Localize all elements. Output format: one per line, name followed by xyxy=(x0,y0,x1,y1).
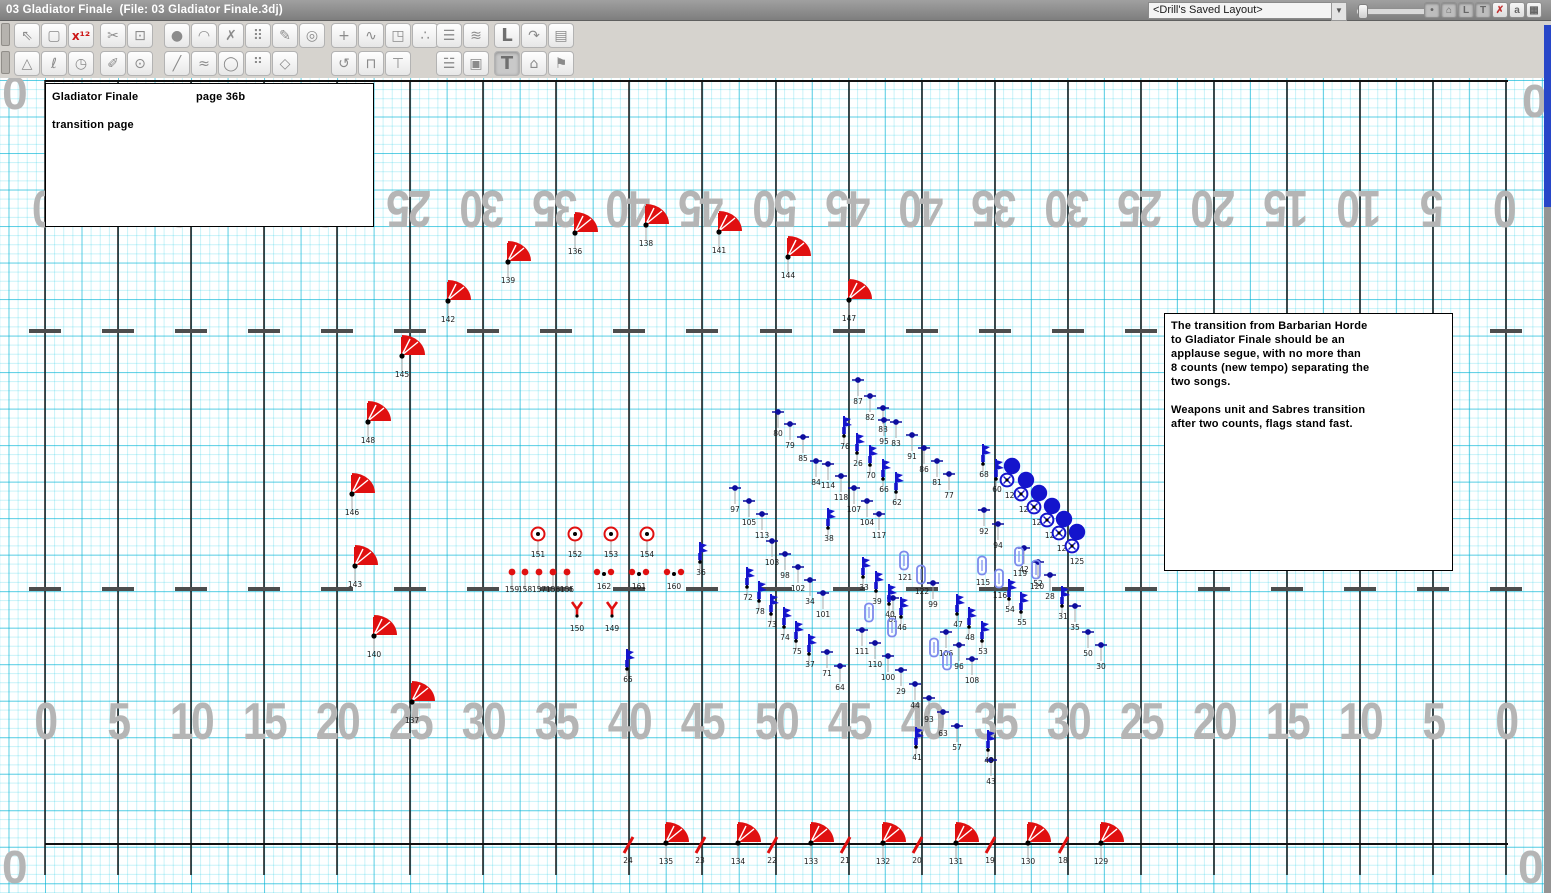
yard-number-top: 35 xyxy=(973,182,1016,234)
flag-performer-label: 144 xyxy=(768,272,808,280)
hash-mark xyxy=(1052,329,1084,333)
text-tool-button[interactable]: T xyxy=(494,51,520,76)
yard-number-top: 15 xyxy=(1266,182,1309,234)
weapon-figure-performer-label: 53 xyxy=(963,648,1003,656)
y-pole-performer[interactable] xyxy=(604,601,620,624)
flag-performer-label: 139 xyxy=(488,277,528,285)
ripple-tool-button[interactable]: ≋ xyxy=(463,23,489,48)
hash-mark xyxy=(833,329,865,333)
yard-number-bottom: 20 xyxy=(316,696,359,748)
slash-performer-label: 21 xyxy=(825,857,865,865)
flag-performer-label: 141 xyxy=(699,247,739,255)
dot-tool-button[interactable]: ● xyxy=(164,23,190,48)
toolbar-group: △ℓ◷ xyxy=(14,51,95,76)
zoom-slider-thumb[interactable] xyxy=(1358,4,1368,19)
back-sideline xyxy=(45,80,1508,82)
dot-performer[interactable] xyxy=(507,568,517,599)
hash-mark xyxy=(1125,329,1157,333)
arc-tool-button[interactable]: ◠ xyxy=(191,23,217,48)
slash-performer-label: 19 xyxy=(970,857,1010,865)
yard-number-bottom: 40 xyxy=(608,696,651,748)
path-adjust-tool-button[interactable]: ∿ xyxy=(358,23,384,48)
slash-performer-label: 20 xyxy=(897,857,937,865)
rifle-dot-performer-label: 35 xyxy=(1055,624,1095,632)
pencil-tool-button[interactable]: ✎ xyxy=(272,23,298,48)
window-title: 03 Gladiator Finale (File: 03 Gladiator … xyxy=(6,0,283,20)
hash-mark xyxy=(686,329,718,333)
yard-number-bottom: 10 xyxy=(170,696,213,748)
hash-mark xyxy=(1198,587,1230,591)
location-pin-tool-button[interactable]: ⊙ xyxy=(127,51,153,76)
hash-mark xyxy=(29,587,61,591)
tri-dot-performer-label: 160 xyxy=(654,583,694,591)
toolbar-group: ⇖▢x¹² xyxy=(14,23,95,48)
yard-number-top: 25 xyxy=(1119,182,1162,234)
hash-mark xyxy=(248,587,280,591)
home-view-button[interactable]: ⌂ xyxy=(1441,2,1457,18)
dropdown-arrow-icon[interactable]: ▼ xyxy=(1331,2,1347,21)
rifle-dot-performer-label: 94 xyxy=(978,542,1018,550)
dot-performer[interactable] xyxy=(562,568,572,599)
move-tool-button[interactable]: + xyxy=(331,23,357,48)
yard-number-bottom: 45 xyxy=(827,696,870,748)
dot-performer-label: 155 xyxy=(547,586,587,594)
dot-view-button[interactable]: • xyxy=(1424,2,1440,18)
circle-dot-performer-label: 154 xyxy=(627,551,667,559)
hash-mark xyxy=(760,329,792,333)
y-pole-performer[interactable] xyxy=(569,601,585,624)
follow-arrow-tool-button[interactable]: ↷ xyxy=(521,23,547,48)
close-button[interactable]: ✗ xyxy=(1492,2,1508,18)
toolbar-grip[interactable] xyxy=(1,51,10,74)
freeform-wave-tool-button[interactable]: ≈ xyxy=(191,51,217,76)
toolbar-group: ↺⊓⊤ xyxy=(331,51,412,76)
flag-performer-label: 130 xyxy=(1008,858,1048,866)
rifle-dot-performer-label: 30 xyxy=(1081,663,1121,671)
weapon-figure-performer-label: 38 xyxy=(809,535,849,543)
align-lines-tool-button[interactable]: ☰ xyxy=(436,23,462,48)
yard-number-bottom: 0 xyxy=(1495,696,1516,748)
rifle-dot-performer-label: 43 xyxy=(971,778,1011,786)
hash-mark xyxy=(467,329,499,333)
tri-dot-performer-label: 161 xyxy=(619,583,659,591)
pole-tool-button[interactable]: ⊤ xyxy=(385,51,411,76)
circle-dot-performer-label: 153 xyxy=(591,551,631,559)
hash-mark xyxy=(102,329,134,333)
dot-cluster-tool-button[interactable]: ⠛ xyxy=(245,51,271,76)
corner-zero-number: 0 xyxy=(1522,78,1545,124)
distribute-tool-button[interactable]: ☱ xyxy=(436,51,462,76)
circle-tool-button[interactable]: ◯ xyxy=(218,51,244,76)
hash-mark xyxy=(321,329,353,333)
lasso-tool-button[interactable]: ℓ xyxy=(41,51,67,76)
home-view-tool-button[interactable]: ⌂ xyxy=(521,51,547,76)
sabre-performer-label: 125 xyxy=(1057,558,1097,566)
flag-performer-label: 137 xyxy=(392,717,432,725)
right-scrollbar-thumb[interactable] xyxy=(1544,25,1551,207)
slash-performer-label: 23 xyxy=(680,857,720,865)
weapon-figure-performer-label: 37 xyxy=(790,661,830,669)
weapon-figure-performer-label: 49 xyxy=(969,757,1009,765)
hash-mark xyxy=(102,587,134,591)
weapon-figure-performer-label: 65 xyxy=(608,676,648,684)
note-page: page 36b xyxy=(196,91,245,103)
tri-dot-performer-label: 162 xyxy=(584,583,624,591)
yard-number-top: 30 xyxy=(1046,182,1089,234)
yard-number-bottom: 30 xyxy=(1046,696,1089,748)
toolbar-group: L↷▤ xyxy=(494,23,575,48)
yard-number-top: 5 xyxy=(1422,182,1443,234)
yard-number-bottom: 10 xyxy=(1339,696,1382,748)
toolbar-group: ●◠✗⠿✎◎ xyxy=(164,23,326,48)
yard-number-top: 20 xyxy=(1193,182,1236,234)
note-title: Gladiator Finale xyxy=(52,91,138,103)
select-tool-button[interactable]: ⇖ xyxy=(14,23,40,48)
yard-number-bottom: 0 xyxy=(34,696,55,748)
toolbar-group: T⌂⚑ xyxy=(494,51,575,76)
title-bar: 03 Gladiator Finale (File: 03 Gladiator … xyxy=(0,0,1551,21)
corner-zero-number: 0 xyxy=(2,844,26,890)
layout-selector-dropdown[interactable]: <Drill's Saved Layout> xyxy=(1148,2,1340,19)
yard-number-top: 0 xyxy=(1495,182,1516,234)
cut-tool-button[interactable]: ✂ xyxy=(100,23,126,48)
flag-performer-label: 143 xyxy=(335,581,375,589)
toolbar-group: ╱≈◯⠛◇ xyxy=(164,51,299,76)
line-tool-button[interactable]: ╱ xyxy=(164,51,190,76)
rifle-dot-performer-label: 108 xyxy=(952,677,992,685)
outline-figure-performer[interactable] xyxy=(928,637,942,666)
rifle-dot-performer-label: 117 xyxy=(859,532,899,540)
t-view-button[interactable]: T xyxy=(1475,2,1491,18)
spiral-tool-button[interactable]: ◎ xyxy=(299,23,325,48)
toolbar-group: ☰≋ xyxy=(436,23,490,48)
grid-view-button[interactable]: ▦ xyxy=(1526,2,1542,18)
toolbar-group: ☱▣ xyxy=(436,51,490,76)
yard-number-top: 40 xyxy=(900,182,943,234)
outline-figure-performer-label: 116 xyxy=(980,592,1020,600)
flag-marker-tool-button[interactable]: ⚑ xyxy=(548,51,574,76)
yard-number-bottom: 35 xyxy=(535,696,578,748)
titlebar-button-group: •⌂LT✗a▦ xyxy=(1424,2,1542,18)
marquee-select-tool-button[interactable]: ▢ xyxy=(41,23,67,48)
weapon-figure-performer-label: 36 xyxy=(681,569,721,577)
hash-mark xyxy=(1125,587,1157,591)
history-clock-tool-button[interactable]: ◷ xyxy=(68,51,94,76)
cone-tool-button[interactable]: △ xyxy=(14,51,40,76)
transition-note-box[interactable]: The transition from Barbarian Horde to G… xyxy=(1164,313,1453,571)
hash-mark xyxy=(1271,587,1303,591)
dot-performer[interactable] xyxy=(520,568,530,599)
block-grid-tool-button[interactable]: ⠿ xyxy=(245,23,271,48)
yard-number-bottom: 15 xyxy=(1266,696,1309,748)
polygon-tool-button[interactable]: ◇ xyxy=(272,51,298,76)
circle-dot-performer-label: 151 xyxy=(518,551,558,559)
yard-number-bottom: 5 xyxy=(107,696,128,748)
flag-performer-label: 147 xyxy=(829,315,869,323)
yard-number-bottom: 15 xyxy=(243,696,286,748)
slash-performer-label: 24 xyxy=(608,857,648,865)
corner-zero-number: 0 xyxy=(4,78,28,116)
rifle-dot-performer-label: 64 xyxy=(820,684,860,692)
hash-mark xyxy=(540,329,572,333)
hash-mark xyxy=(906,329,938,333)
duplicate-tool-button[interactable]: ▣ xyxy=(463,51,489,76)
weapon-figure-performer-label: 41 xyxy=(897,754,937,762)
flag-performer-label: 138 xyxy=(626,240,666,248)
circle-dot-performer-label: 152 xyxy=(555,551,595,559)
hash-mark xyxy=(248,329,280,333)
yard-number-bottom: 25 xyxy=(1119,696,1162,748)
transition-note-text: The transition from Barbarian Horde to G… xyxy=(1171,319,1446,431)
note-subtitle: transition page xyxy=(52,119,134,131)
rifle-dot-performer-label: 101 xyxy=(803,611,843,619)
hash-mark xyxy=(175,587,207,591)
hash-mark xyxy=(979,329,1011,333)
curve-tool-button[interactable]: ✗ xyxy=(218,23,244,48)
toolbar-group: ✐⊙ xyxy=(100,51,154,76)
flag-performer-label: 136 xyxy=(555,248,595,256)
toolbar-group: +∿◳∴ xyxy=(331,23,439,48)
flag-performer-label: 140 xyxy=(354,651,394,659)
page-note-box[interactable]: Gladiator Finale page 36b transition pag… xyxy=(45,83,374,227)
drill-field-canvas[interactable]: Gladiator Finale page 36b transition pag… xyxy=(0,78,1545,893)
flag-performer-label: 129 xyxy=(1081,858,1121,866)
zoom-tool-button[interactable]: a xyxy=(1509,2,1525,18)
count-x12-tool-button[interactable]: x¹² xyxy=(68,23,94,48)
flag-performer-label: 148 xyxy=(348,437,388,445)
yard-number-top: 25 xyxy=(389,182,432,234)
weapon-figure-performer-label: 62 xyxy=(877,499,917,507)
l-view-button[interactable]: L xyxy=(1458,2,1474,18)
rifle-dot-performer-label: 77 xyxy=(929,492,969,500)
hash-mark xyxy=(1490,329,1522,333)
slash-performer-label: 22 xyxy=(752,857,792,865)
hash-mark xyxy=(394,587,426,591)
ell-maneuver-tool-button[interactable]: L xyxy=(494,23,520,48)
flag-performer-label: 146 xyxy=(332,509,372,517)
yard-number-top: 50 xyxy=(754,182,797,234)
outline-figure-performer[interactable] xyxy=(863,602,877,631)
scatter-tool-button[interactable]: ∴ xyxy=(412,23,438,48)
slash-performer-label: 18 xyxy=(1043,857,1083,865)
dot-performer[interactable] xyxy=(534,568,544,599)
yard-number-top: 45 xyxy=(827,182,870,234)
main-toolbar: ⇖▢x¹²✂⊡●◠✗⠿✎◎+∿◳∴☰≋L↷▤ △ℓ◷✐⊙╱≈◯⠛◇↺⊓⊤☱▣T⌂… xyxy=(0,20,1551,78)
dot-performer[interactable] xyxy=(548,568,558,599)
yard-number-top: 10 xyxy=(1339,182,1382,234)
yard-number-top: 30 xyxy=(462,182,505,234)
rifle-dot-performer-label: 57 xyxy=(937,744,977,752)
scale-tool-button[interactable]: ◳ xyxy=(385,23,411,48)
hash-mark xyxy=(175,329,207,333)
outline-figure-performer-label: 120 xyxy=(1017,583,1057,591)
toolbar-grip[interactable] xyxy=(1,23,10,46)
rotate-tool-button[interactable]: ↺ xyxy=(331,51,357,76)
yard-number-bottom: 5 xyxy=(1422,696,1443,748)
corner-zero-number: 0 xyxy=(1518,844,1542,890)
toolbar-group: ✂⊡ xyxy=(100,23,154,48)
flag-performer-label: 145 xyxy=(382,371,422,379)
weapon-figure-performer-label: 55 xyxy=(1002,619,1042,627)
y-pole-performer-label: 150 xyxy=(557,625,597,633)
outline-figure-performer[interactable] xyxy=(886,617,900,646)
rifle-dot-performer-label: 99 xyxy=(913,601,953,609)
flag-performer-label: 142 xyxy=(428,316,468,324)
yard-number-bottom: 20 xyxy=(1193,696,1236,748)
highlighter-tool-button[interactable]: ✐ xyxy=(100,51,126,76)
hash-mark xyxy=(1490,587,1522,591)
hash-mark xyxy=(29,329,61,333)
yard-number-bottom: 45 xyxy=(681,696,724,748)
outline-figure-performer-label: 122 xyxy=(902,588,942,596)
weapon-figure-performer-label: 31 xyxy=(1043,613,1083,621)
yard-number-bottom: 50 xyxy=(754,696,797,748)
outline-figure-performer[interactable] xyxy=(941,650,955,679)
hash-mark xyxy=(613,329,645,333)
y-pole-performer-label: 149 xyxy=(592,625,632,633)
segment-node-tool-button[interactable]: ⊡ xyxy=(127,23,153,48)
gate-turn-tool-button[interactable]: ⊓ xyxy=(358,51,384,76)
yard-number-bottom: 30 xyxy=(462,696,505,748)
notes-sheet-tool-button[interactable]: ▤ xyxy=(548,23,574,48)
hash-mark xyxy=(1344,587,1376,591)
app-window: { "titlebar": { "title": "03 Gladiator F… xyxy=(0,0,1551,893)
hash-mark xyxy=(1417,587,1449,591)
